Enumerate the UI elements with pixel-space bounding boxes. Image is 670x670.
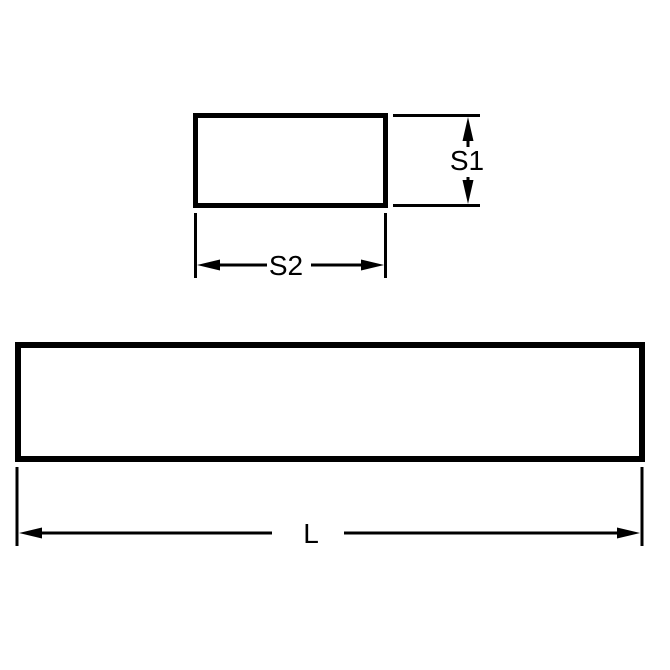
l-dimension: L [17, 467, 642, 549]
arrow-right-icon [361, 260, 384, 271]
arrow-left-icon [197, 260, 220, 271]
cross-section-view: S1 S2 [196, 116, 485, 282]
s2-dimension: S2 [196, 213, 386, 281]
diagram-canvas: S1 S2 L [0, 0, 670, 670]
s1-dimension: S1 [393, 116, 484, 206]
arrow-up-icon [463, 117, 474, 141]
dimension-drawing: S1 S2 L [0, 0, 670, 670]
side-view: L [17, 345, 642, 549]
arrow-left-icon [19, 528, 42, 539]
s2-label: S2 [269, 250, 303, 281]
arrow-down-icon [463, 180, 474, 204]
s1-label: S1 [450, 145, 484, 176]
l-label: L [303, 518, 319, 549]
side-view-rect [18, 345, 642, 459]
arrow-right-icon [617, 528, 640, 539]
cross-section-rect [196, 116, 386, 206]
